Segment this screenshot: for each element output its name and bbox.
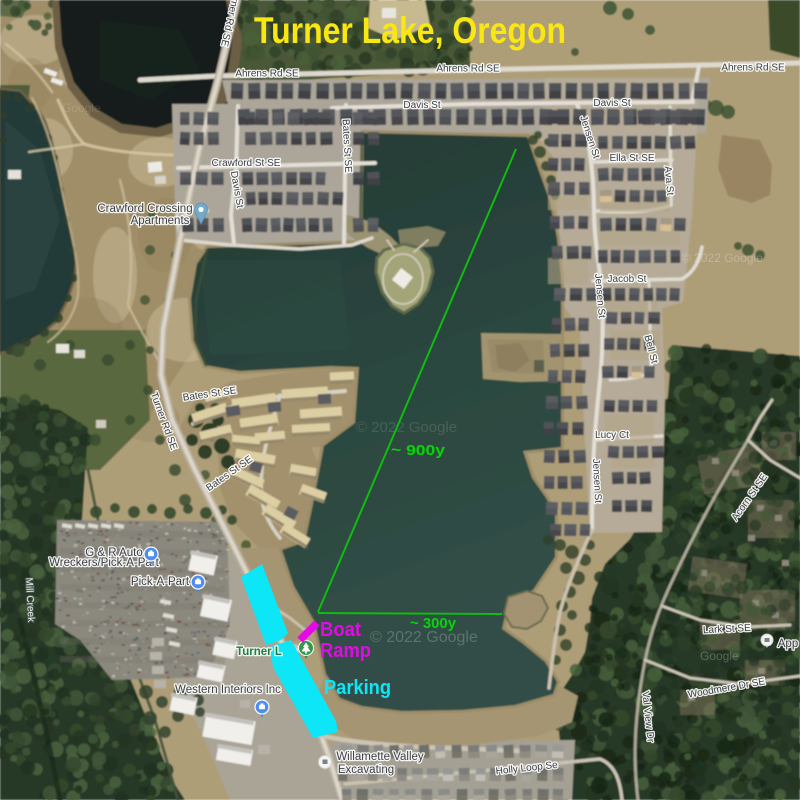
svg-text:Turner L: Turner L [236,646,282,658]
svg-text:Google: Google [62,101,101,115]
svg-text:Turner Lake, Oregon: Turner Lake, Oregon [254,10,566,51]
svg-text:Crawford St SE: Crawford St SE [212,158,281,169]
svg-text:Jensen St: Jensen St [590,458,603,503]
svg-text:Ahrens Rd SE: Ahrens Rd SE [436,64,500,75]
svg-text:Lucy Ct: Lucy Ct [595,430,629,441]
svg-text:Boat: Boat [320,619,361,641]
svg-text:© 2022 Google: © 2022 Google [356,419,457,436]
svg-text:Davis St: Davis St [593,98,630,109]
svg-text:Wreckers/Pick-A-Part: Wreckers/Pick-A-Part [49,557,159,569]
svg-text:© 2022 Google: © 2022 Google [682,251,763,265]
svg-text:Willamette Valley: Willamette Valley [336,751,424,763]
svg-text:Apartments: Apartments [131,215,190,227]
svg-text:Google: Google [700,649,739,663]
svg-text:~ 300y: ~ 300y [410,615,457,632]
svg-text:App: App [778,638,798,650]
svg-text:~ 900y: ~ 900y [391,442,446,459]
svg-text:Western Interiors Inc: Western Interiors Inc [175,684,281,696]
svg-text:Ahrens Rd SE: Ahrens Rd SE [721,63,785,74]
svg-text:Crawford Crossing: Crawford Crossing [97,203,192,215]
svg-text:Pick-A-Part: Pick-A-Part [131,576,190,588]
svg-text:Davis St: Davis St [403,100,440,111]
svg-text:Ella St SE: Ella St SE [609,153,654,164]
svg-text:Ahrens Rd SE: Ahrens Rd SE [235,69,299,80]
svg-text:Ramp: Ramp [320,640,371,662]
svg-text:Parking: Parking [324,676,391,699]
svg-text:Excavating: Excavating [338,764,394,776]
svg-text:Jacob St: Jacob St [608,274,647,285]
